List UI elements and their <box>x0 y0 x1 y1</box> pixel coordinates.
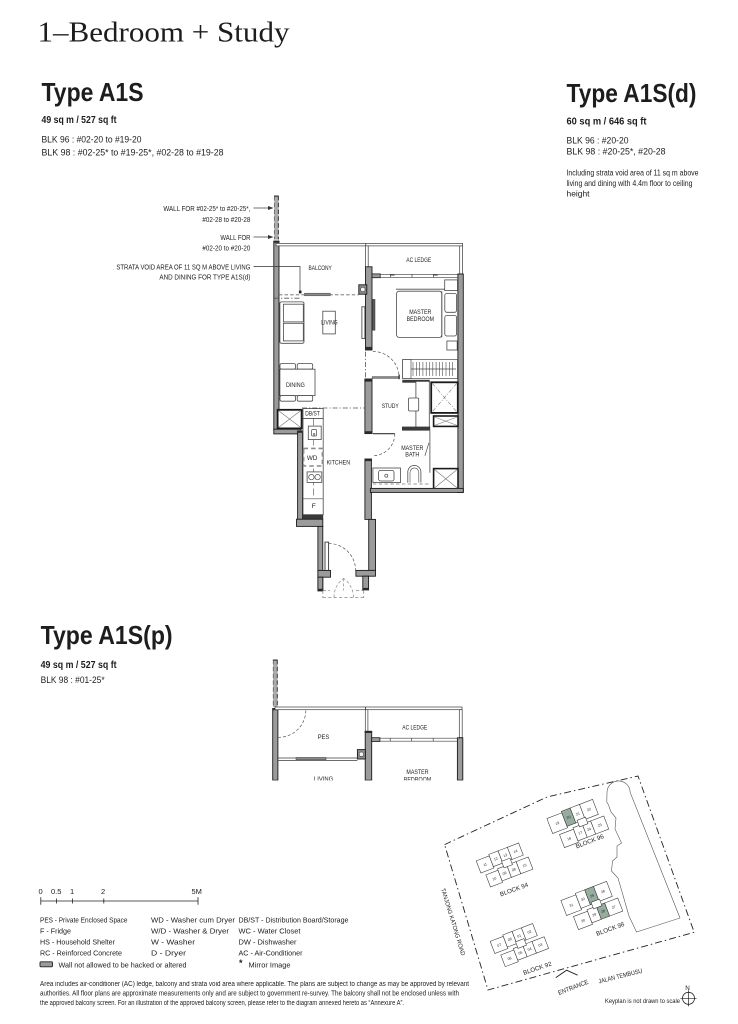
svg-text:WALL FOR: WALL FOR <box>220 233 250 242</box>
svg-text:F - Fridge: F - Fridge <box>40 927 71 936</box>
svg-text:BLK 98 : #01-25*: BLK 98 : #01-25* <box>41 675 105 685</box>
svg-text:DW - Dishwasher: DW - Dishwasher <box>239 938 297 947</box>
svg-text:MASTER: MASTER <box>406 769 428 776</box>
svg-text:WD: WD <box>307 455 318 462</box>
svg-text:LIVING: LIVING <box>321 319 337 326</box>
svg-text:KITCHEN: KITCHEN <box>327 460 351 467</box>
svg-text:#02-28 to #20-28: #02-28 to #20-28 <box>202 215 250 224</box>
svg-text:W/D - Washer & Dryer: W/D - Washer & Dryer <box>151 927 229 936</box>
svg-text:DB/ST - Distribution Board/Sto: DB/ST - Distribution Board/Storage <box>239 916 349 925</box>
svg-text:*: * <box>239 958 243 968</box>
svg-text:N: N <box>685 985 690 992</box>
svg-text:AC - Air-Conditioner: AC - Air-Conditioner <box>239 949 303 958</box>
svg-text:STUDY: STUDY <box>382 403 400 410</box>
svg-text:0: 0 <box>39 887 43 896</box>
svg-text:Keyplan is not drawn to scale: Keyplan is not drawn to scale <box>605 998 680 1005</box>
svg-text:BATH: BATH <box>405 452 419 459</box>
svg-text:STRATA VOID AREA OF 11 SQ M AB: STRATA VOID AREA OF 11 SQ M ABOVE LIVING <box>116 262 250 271</box>
svg-text:W - Washer: W - Washer <box>151 938 196 947</box>
svg-text:WC - Water Closet: WC - Water Closet <box>239 927 302 936</box>
svg-text:DB/ST: DB/ST <box>305 411 320 418</box>
svg-text:2: 2 <box>101 887 105 896</box>
svg-text:49 sq m / 527 sq ft: 49 sq m / 527 sq ft <box>42 115 118 126</box>
svg-text:5M: 5M <box>192 887 202 896</box>
svg-text:49 sq m / 527 sq ft: 49 sq m / 527 sq ft <box>41 660 118 671</box>
svg-text:Type A1S: Type A1S <box>42 77 144 107</box>
svg-text:Wall not allowed to be hacked: Wall not allowed to be hacked or altered <box>59 961 187 970</box>
svg-text:Type A1S(d): Type A1S(d) <box>567 78 697 108</box>
svg-text:BALCONY: BALCONY <box>309 265 333 272</box>
svg-text:height: height <box>567 190 591 199</box>
svg-text:Area includes air-conditioner: Area includes air-conditioner (AC) ledge… <box>40 981 469 988</box>
svg-text:1–Bedroom + Study: 1–Bedroom + Study <box>38 17 291 49</box>
svg-text:PES - Private Enclosed Space: PES - Private Enclosed Space <box>40 916 128 925</box>
svg-text:60 sq m / 646 sq ft: 60 sq m / 646 sq ft <box>567 117 648 128</box>
svg-text:1: 1 <box>70 887 74 896</box>
svg-text:DINING: DINING <box>286 382 305 389</box>
svg-text:BLK 98 : #02-25* to #19-25*, #: BLK 98 : #02-25* to #19-25*, #02-28 to #… <box>42 148 224 158</box>
svg-text:AC LEDGE: AC LEDGE <box>402 725 427 732</box>
svg-text:#02-20 to #20-20: #02-20 to #20-20 <box>202 243 250 252</box>
svg-text:D - Dryer: D - Dryer <box>151 949 187 958</box>
svg-text:0.5: 0.5 <box>51 887 61 896</box>
svg-text:AND DINING FOR TYPE A1S(d): AND DINING FOR TYPE A1S(d) <box>159 272 250 281</box>
svg-text:BLK 96 : #02-20 to #19-20: BLK 96 : #02-20 to #19-20 <box>42 135 142 145</box>
svg-text:HS - Household Shelter: HS - Household Shelter <box>40 938 115 947</box>
svg-text:F: F <box>312 503 316 510</box>
svg-text:living and dining with 4.4m fl: living and dining with 4.4m floor to cei… <box>567 179 693 188</box>
svg-text:MASTER: MASTER <box>409 309 431 316</box>
svg-text:Type A1S(p): Type A1S(p) <box>41 620 173 650</box>
svg-text:BLK 96 : #20-20: BLK 96 : #20-20 <box>567 136 629 146</box>
svg-text:RC - Reinforced Concrete: RC - Reinforced Concrete <box>40 949 122 958</box>
svg-text:WALL FOR #02-25* to #20-25*,: WALL FOR #02-25* to #20-25*, <box>163 204 250 213</box>
svg-text:BEDROOM: BEDROOM <box>407 316 434 323</box>
svg-text:AC LEDGE: AC LEDGE <box>406 257 431 264</box>
svg-text:Mirror Image: Mirror Image <box>249 961 291 970</box>
svg-text:the approved balcony screen. F: the approved balcony screen. For an illu… <box>40 1000 404 1007</box>
svg-text:Including strata void area of: Including strata void area of 11 sq m ab… <box>567 169 699 178</box>
svg-text:authorities. All floor plans a: authorities. All floor plans are approxi… <box>40 991 459 998</box>
svg-text:WD - Washer cum Dryer: WD - Washer cum Dryer <box>151 916 235 925</box>
svg-text:PES: PES <box>318 734 330 741</box>
svg-text:BLK 98 : #20-25*, #20-28: BLK 98 : #20-25*, #20-28 <box>567 147 666 157</box>
